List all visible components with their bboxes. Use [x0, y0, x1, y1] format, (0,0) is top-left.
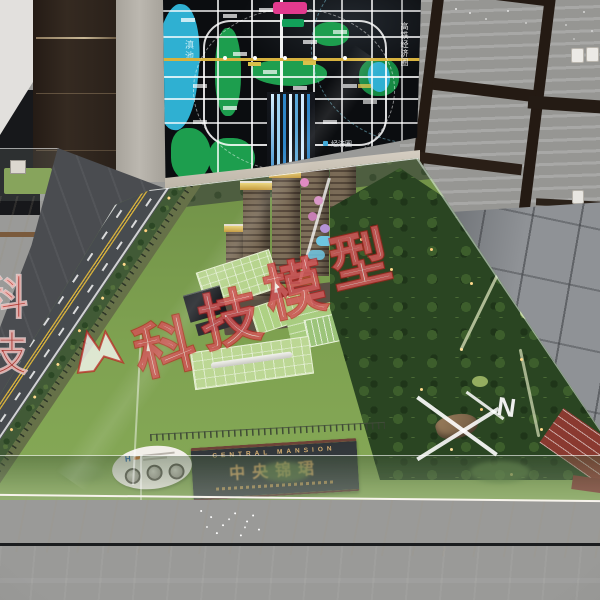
map-green-badge: [282, 19, 304, 27]
map-label-yellow-dots: [248, 62, 261, 66]
map-econ-icon: [323, 141, 328, 146]
base-reflection-line: [0, 578, 600, 583]
gray-pillar: [116, 0, 168, 182]
roof-tube: [211, 351, 293, 368]
glass-reflection-2: [260, 462, 310, 482]
glass-reflection-1: [60, 464, 104, 482]
tower-2: [272, 176, 300, 284]
map-label-dot-row: [181, 18, 195, 22]
map-project-badge: [273, 2, 307, 14]
glass-reflection-3: [470, 461, 530, 483]
wall-outlet-1: [571, 48, 584, 63]
wood-shelf-line-2: [36, 93, 116, 94]
forest-clearing-2: [472, 376, 488, 387]
axis-violet: [320, 224, 330, 233]
mini-model-block: [10, 160, 26, 174]
wall-outlet-3: [572, 190, 584, 204]
table-base: [0, 543, 600, 600]
forest-path-2: [519, 349, 541, 438]
wall-outlet-2: [586, 47, 599, 62]
tower-1-cap: [240, 181, 273, 190]
axis-pink-1: [300, 178, 309, 187]
map-park-1: [171, 128, 211, 180]
showroom-photo: 滇池 高铁经济圈 经济圈: [0, 0, 600, 600]
map-station-dots: [223, 56, 227, 60]
map-econ-label: 经济圈: [331, 139, 352, 149]
ledge-sparkles: [200, 510, 202, 512]
map-rail-zone-label: 高铁经济圈: [399, 22, 410, 67]
wood-shelf-line-1: [36, 37, 116, 39]
forest-lights: [360, 238, 363, 241]
